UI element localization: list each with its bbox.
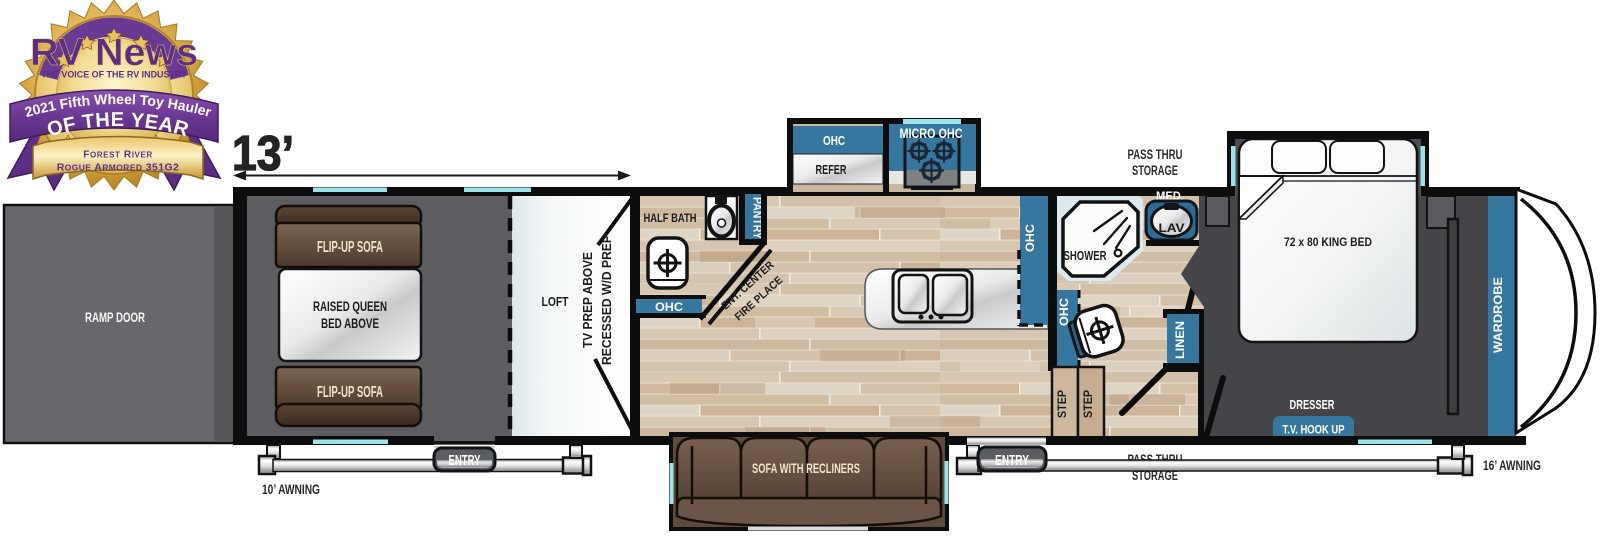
svg-text:THE VOICE OF THE RV INDUSTRY: THE VOICE OF THE RV INDUSTRY — [41, 70, 188, 81]
svg-text:OHC: OHC — [1059, 298, 1071, 326]
svg-text:OHC: OHC — [655, 300, 683, 314]
svg-text:10’ AWNING: 10’ AWNING — [262, 482, 320, 497]
svg-text:DRESSER: DRESSER — [1290, 397, 1335, 412]
svg-text:OHC: OHC — [1023, 224, 1037, 252]
svg-text:BED ABOVE: BED ABOVE — [321, 316, 379, 331]
svg-text:PANTRY: PANTRY — [751, 197, 763, 239]
svg-text:FLIP-UP SOFA: FLIP-UP SOFA — [317, 239, 383, 256]
svg-text:T.V. HOOK UP: T.V. HOOK UP — [1283, 423, 1345, 437]
svg-text:RAMP DOOR: RAMP DOOR — [85, 310, 145, 325]
svg-text:72 x 80 KING BED: 72 x 80 KING BED — [1284, 235, 1372, 249]
svg-text:SOFA WITH RECLINERS: SOFA WITH RECLINERS — [752, 461, 860, 476]
svg-text:ENTRY: ENTRY — [995, 453, 1029, 469]
svg-text:RAISED QUEEN: RAISED QUEEN — [313, 299, 387, 314]
svg-text:LAV: LAV — [1159, 221, 1185, 235]
svg-text:TV PREP ABOVE: TV PREP ABOVE — [581, 252, 595, 348]
svg-text:MICRO OHC: MICRO OHC — [900, 126, 963, 141]
svg-text:FOREST RIVER: FOREST RIVER — [83, 150, 153, 161]
svg-text:SHOWER: SHOWER — [1064, 249, 1107, 263]
svg-text:RV News: RV News — [30, 32, 198, 74]
svg-text:OHC: OHC — [823, 133, 845, 148]
svg-text:WARDROBE: WARDROBE — [1491, 277, 1505, 353]
svg-text:HALF BATH: HALF BATH — [644, 211, 697, 225]
svg-text:ROGUE ARMORED 351G2: ROGUE ARMORED 351G2 — [57, 162, 180, 174]
svg-text:RECESSED W/D PREP: RECESSED W/D PREP — [600, 235, 614, 365]
svg-text:16’ AWNING: 16’ AWNING — [1483, 458, 1541, 473]
svg-text:STORAGE: STORAGE — [1132, 163, 1178, 178]
svg-text:LOFT: LOFT — [542, 294, 569, 309]
svg-text:STEP: STEP — [1057, 390, 1069, 418]
svg-text:PASS THRU: PASS THRU — [1128, 147, 1183, 162]
svg-text:LINEN: LINEN — [1175, 321, 1187, 359]
svg-text:REFER: REFER — [816, 162, 847, 177]
svg-text:STEP: STEP — [1083, 390, 1095, 418]
svg-text:FLIP-UP SOFA: FLIP-UP SOFA — [317, 384, 383, 401]
svg-text:ENTRY: ENTRY — [449, 453, 481, 469]
